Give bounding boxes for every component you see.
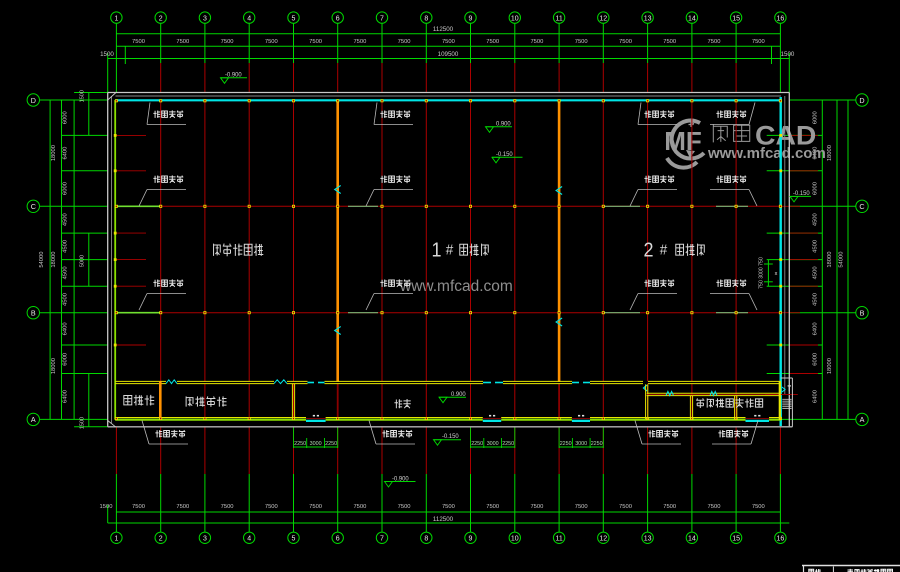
svg-text:6000: 6000 (63, 111, 69, 124)
svg-text:7500: 7500 (530, 39, 543, 45)
svg-text:4: 4 (247, 536, 251, 543)
svg-text:4: 4 (247, 15, 251, 22)
svg-text:10: 10 (511, 15, 519, 22)
svg-text:12: 12 (599, 536, 607, 543)
svg-text:2250: 2250 (591, 441, 603, 447)
svg-text:16: 16 (777, 536, 785, 543)
svg-text:11: 11 (555, 15, 562, 22)
svg-text:1500: 1500 (100, 504, 113, 510)
svg-text:3000: 3000 (575, 441, 587, 447)
svg-text:4500: 4500 (813, 266, 819, 279)
svg-text:7500: 7500 (530, 504, 543, 510)
svg-text:www.mfcad.com: www.mfcad.com (707, 145, 826, 162)
svg-text:7500: 7500 (176, 504, 189, 510)
svg-text:7: 7 (380, 536, 384, 543)
svg-text:18000: 18000 (51, 145, 57, 161)
svg-text:18000: 18000 (51, 358, 57, 374)
svg-text:1500: 1500 (80, 90, 86, 102)
svg-text:7500: 7500 (486, 504, 499, 510)
svg-text:8: 8 (424, 15, 428, 22)
svg-text:www.mfcad.com: www.mfcad.com (399, 278, 513, 295)
svg-text:7: 7 (380, 15, 384, 22)
svg-text:15: 15 (732, 15, 740, 22)
svg-text:1: 1 (114, 536, 118, 543)
svg-text:6400: 6400 (63, 390, 69, 403)
svg-text:D: D (31, 96, 36, 105)
svg-text:13: 13 (644, 536, 652, 543)
svg-text:7500: 7500 (176, 39, 189, 45)
svg-text:A: A (860, 415, 865, 424)
svg-text:1: 1 (114, 15, 118, 22)
svg-text:7500: 7500 (442, 504, 455, 510)
svg-text:4500: 4500 (63, 266, 69, 279)
svg-text:2: 2 (159, 536, 163, 543)
svg-text:13: 13 (644, 15, 652, 22)
svg-text:9: 9 (469, 15, 473, 22)
svg-text:10: 10 (511, 536, 519, 543)
svg-text:7500: 7500 (309, 504, 322, 510)
svg-text:16: 16 (777, 15, 785, 22)
svg-text:-0.150: -0.150 (442, 433, 459, 440)
svg-text:11: 11 (555, 536, 562, 543)
svg-text:5000: 5000 (80, 255, 86, 267)
svg-text:D: D (859, 96, 864, 105)
svg-text:3000: 3000 (310, 441, 322, 447)
svg-text:109500: 109500 (438, 51, 459, 58)
svg-text:7500: 7500 (132, 39, 145, 45)
svg-text:54000: 54000 (839, 252, 845, 268)
svg-text:7500: 7500 (442, 39, 455, 45)
svg-text:4500: 4500 (813, 293, 819, 306)
svg-text:0.900: 0.900 (496, 120, 511, 127)
svg-text:2250: 2250 (471, 441, 483, 447)
svg-text:x: x (775, 271, 778, 277)
svg-text:3: 3 (203, 15, 207, 22)
svg-text:7500: 7500 (575, 39, 588, 45)
svg-text:6400: 6400 (813, 390, 819, 403)
svg-text:112500: 112500 (433, 516, 454, 523)
svg-text:5: 5 (292, 15, 296, 22)
svg-text:C: C (859, 202, 864, 211)
svg-text:7500: 7500 (575, 504, 588, 510)
svg-text:12: 12 (599, 15, 607, 22)
svg-text:8: 8 (424, 536, 428, 543)
svg-text:7500: 7500 (486, 39, 499, 45)
svg-text:1500: 1500 (80, 417, 86, 429)
svg-text:4500: 4500 (63, 213, 69, 226)
svg-text:6400: 6400 (63, 147, 69, 160)
svg-text:7500: 7500 (752, 504, 765, 510)
svg-text:7500: 7500 (353, 504, 366, 510)
svg-text:2250: 2250 (560, 441, 572, 447)
svg-text:18000: 18000 (51, 252, 57, 268)
svg-text:18000: 18000 (827, 358, 833, 374)
svg-text:7500: 7500 (663, 39, 676, 45)
svg-text:C: C (31, 202, 36, 211)
svg-text:6000: 6000 (63, 353, 69, 366)
svg-text:7500: 7500 (132, 504, 145, 510)
svg-text:2250: 2250 (294, 441, 306, 447)
svg-text:2: 2 (159, 15, 163, 22)
svg-text:1500: 1500 (781, 51, 795, 58)
svg-text:B: B (860, 309, 865, 318)
svg-text:750: 750 (759, 280, 765, 289)
svg-text:6: 6 (336, 15, 340, 22)
svg-text:2: 2 (643, 240, 653, 262)
svg-text:7500: 7500 (752, 39, 765, 45)
svg-text:7500: 7500 (221, 39, 234, 45)
svg-text:1500: 1500 (100, 51, 114, 58)
svg-text:A: A (31, 415, 36, 424)
svg-text:7500: 7500 (708, 39, 721, 45)
svg-text:5: 5 (292, 536, 296, 543)
svg-text:18000: 18000 (827, 252, 833, 268)
svg-text:7500: 7500 (619, 39, 632, 45)
svg-text:15: 15 (732, 536, 740, 543)
svg-text:B: B (31, 309, 36, 318)
svg-text:6400: 6400 (63, 322, 69, 335)
svg-text:#: # (446, 242, 454, 259)
svg-text:7500: 7500 (265, 39, 278, 45)
svg-text:2250: 2250 (325, 441, 337, 447)
svg-text:9: 9 (469, 536, 473, 543)
svg-text:1: 1 (431, 240, 441, 262)
svg-text:7500: 7500 (663, 504, 676, 510)
svg-text:3000: 3000 (487, 441, 499, 447)
svg-text:6000: 6000 (63, 182, 69, 195)
svg-text:4500: 4500 (63, 293, 69, 306)
svg-text:6000: 6000 (813, 353, 819, 366)
svg-text:14: 14 (688, 15, 696, 22)
svg-text:3000: 3000 (759, 267, 765, 279)
svg-text:4500: 4500 (63, 240, 69, 253)
svg-text:7500: 7500 (398, 504, 411, 510)
svg-text:MF: MF (664, 126, 702, 156)
svg-text:18000: 18000 (827, 145, 833, 161)
svg-text:4500: 4500 (813, 213, 819, 226)
svg-text:14: 14 (688, 536, 696, 543)
svg-text:6000: 6000 (813, 182, 819, 195)
svg-text:7500: 7500 (708, 504, 721, 510)
svg-text:7500: 7500 (309, 39, 322, 45)
svg-text:750: 750 (759, 257, 765, 266)
svg-text:54000: 54000 (39, 252, 45, 268)
svg-text:3: 3 (203, 536, 207, 543)
svg-text:7500: 7500 (265, 504, 278, 510)
svg-text:7500: 7500 (353, 39, 366, 45)
svg-text:#: # (660, 242, 668, 259)
svg-text:7500: 7500 (221, 504, 234, 510)
svg-text:6: 6 (336, 536, 340, 543)
svg-text:7500: 7500 (398, 39, 411, 45)
svg-text:112500: 112500 (433, 26, 454, 33)
svg-text:4500: 4500 (813, 240, 819, 253)
svg-text:7500: 7500 (619, 504, 632, 510)
svg-text:2250: 2250 (502, 441, 514, 447)
svg-text:6400: 6400 (813, 322, 819, 335)
